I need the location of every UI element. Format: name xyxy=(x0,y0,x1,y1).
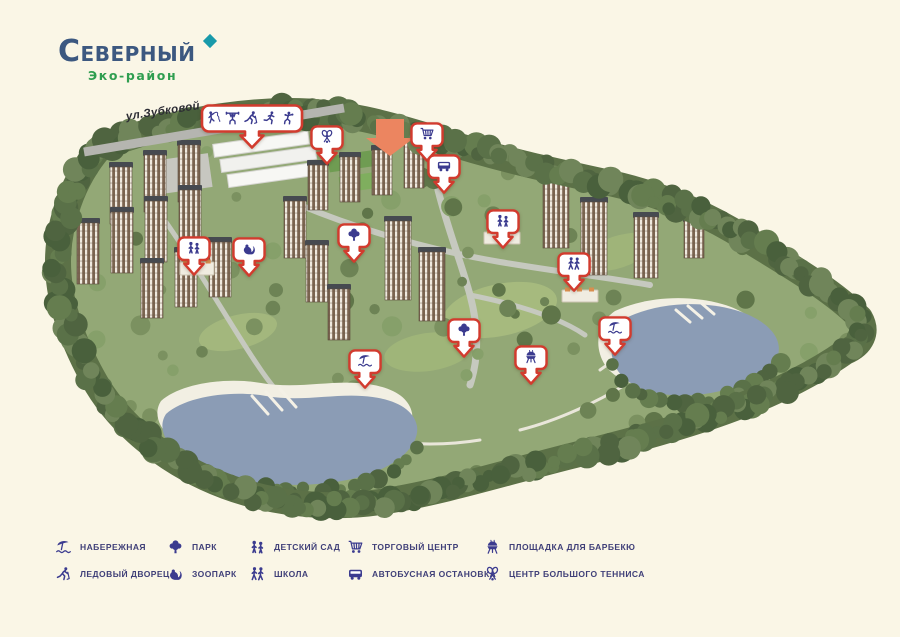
legend-label: АВТОБУСНАЯ ОСТАНОВКА xyxy=(372,569,496,579)
legend-item-park: ПАРК xyxy=(167,538,249,555)
marker-bbq-area[interactable] xyxy=(514,345,548,399)
legend-label: ЛЕДОВЫЙ ДВОРЕЦ xyxy=(80,569,170,579)
embankment-icon xyxy=(55,539,72,555)
legend-label: ПЛОЩАДКА ДЛЯ БАРБЕКЮ xyxy=(509,542,635,552)
legend-item-kindergarten: ДЕТСКИЙ САД xyxy=(249,538,347,555)
hockey-icon xyxy=(55,566,72,582)
logo-subtitle: Эко-район xyxy=(88,68,278,83)
logo-title: СЕВЕРНЫЙ xyxy=(58,38,278,68)
marker-tennis-center[interactable] xyxy=(310,125,344,179)
marker-kindergarten-west[interactable] xyxy=(177,236,211,290)
legend-label: ДЕТСКИЙ САД xyxy=(274,542,340,552)
marker-bus-stop[interactable] xyxy=(427,154,461,208)
park-icon xyxy=(167,539,184,555)
legend-item-bbq: ПЛОЩАДКА ДЛЯ БАРБЕКЮ xyxy=(484,538,645,555)
legend-item-bus: АВТОБУСНАЯ ОСТАНОВКА xyxy=(347,565,484,582)
marker-school[interactable] xyxy=(557,252,591,306)
marker-embankment-east[interactable] xyxy=(598,316,632,370)
legend-item-embankment: НАБЕРЕЖНАЯ xyxy=(55,538,167,555)
marker-embankment-west[interactable] xyxy=(348,349,382,403)
legend-item-hockey: ЛЕДОВЫЙ ДВОРЕЦ xyxy=(55,565,167,582)
legend-item-school: ШКОЛА xyxy=(249,565,347,582)
marker-kindergarten-east[interactable] xyxy=(486,209,520,263)
legend-item-zoo: ЗООПАРК xyxy=(167,565,249,582)
tennis-icon xyxy=(484,566,501,582)
legend: НАБЕРЕЖНАЯПАРКДЕТСКИЙ САДТОРГОВЫЙ ЦЕНТРП… xyxy=(55,538,645,582)
legend-label: ШКОЛА xyxy=(274,569,308,579)
kindergarten-icon xyxy=(249,539,266,555)
cart-icon xyxy=(347,539,364,555)
legend-label: ТОРГОВЫЙ ЦЕНТР xyxy=(372,542,459,552)
legend-label: ПАРК xyxy=(192,542,217,552)
marker-sports-complex[interactable] xyxy=(200,104,304,155)
legend-label: НАБЕРЕЖНАЯ xyxy=(80,542,146,552)
marker-zoo[interactable] xyxy=(232,237,266,291)
marker-park-south[interactable] xyxy=(447,318,481,372)
masterplan-page: ул.Зубковой СЕВЕРНЫЙ Эко-район xyxy=(0,0,900,637)
bbq-icon xyxy=(484,539,501,555)
legend-label: ЦЕНТР БОЛЬШОГО ТЕННИСА xyxy=(509,569,645,579)
marker-park-north[interactable] xyxy=(337,223,371,277)
legend-item-cart: ТОРГОВЫЙ ЦЕНТР xyxy=(347,538,484,555)
bus-icon xyxy=(347,566,364,582)
legend-item-tennis: ЦЕНТР БОЛЬШОГО ТЕННИСА xyxy=(484,565,645,582)
logo: СЕВЕРНЫЙ Эко-район xyxy=(58,38,278,83)
legend-label: ЗООПАРК xyxy=(192,569,237,579)
zoo-icon xyxy=(167,566,184,582)
school-icon xyxy=(249,566,266,582)
